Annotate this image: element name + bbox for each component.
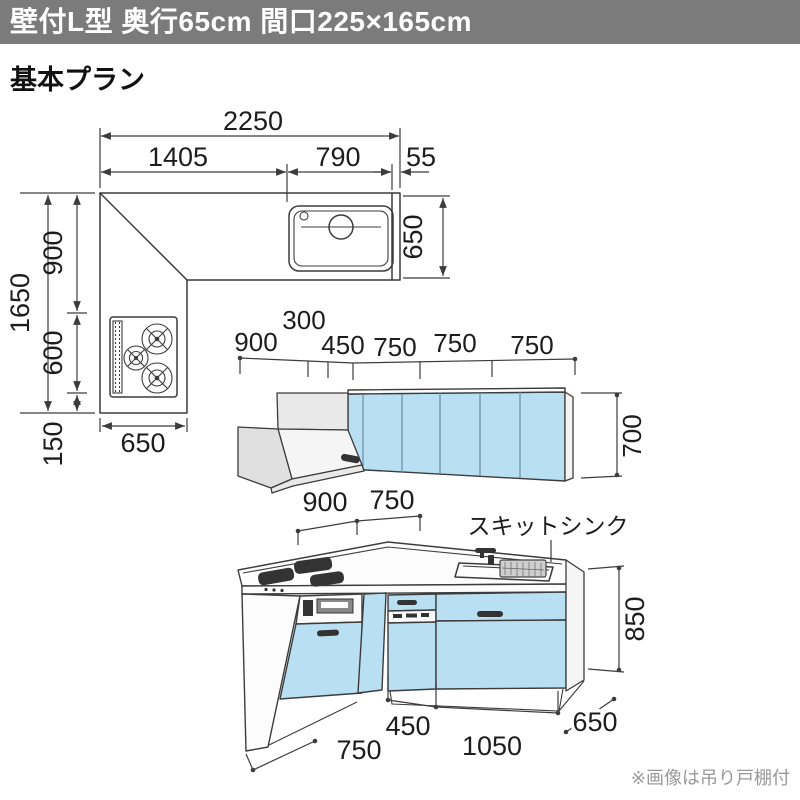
dim-base-depth: 650 [572, 707, 617, 737]
dim-plan-width-sink: 790 [315, 142, 360, 172]
dim-wall-height: 700 [617, 414, 647, 457]
drainer-basket [500, 560, 546, 577]
dim-base-back-left: 900 [302, 487, 347, 517]
dim-wall-door3: 750 [510, 330, 553, 360]
burner-mid-left [124, 346, 148, 370]
corner-diagonal [100, 193, 187, 280]
dim-plan-depth-upper: 900 [38, 230, 68, 275]
sink-cabinet-bottom-drawer [436, 620, 566, 689]
base-cabinet-elevation: 900 750 スキットシンク 850 650 450 1050 750 [238, 485, 650, 772]
dim-plan-leg-width: 650 [120, 428, 165, 458]
cooktop-plan [110, 317, 177, 397]
burner-top-right [142, 324, 172, 354]
dim-base-unit-small: 450 [385, 711, 430, 741]
dim-plan-depth-lower: 150 [38, 421, 68, 466]
dim-plan-depth-mid: 600 [38, 330, 68, 375]
dim-base-leg-depth: 750 [336, 735, 381, 765]
sink-drawer-handle [477, 611, 503, 617]
sink-product-label: スキットシンク [468, 513, 629, 539]
dim-wall-hood: 900 [234, 327, 277, 357]
sink-plan [289, 206, 393, 271]
dim-base-height: 850 [620, 596, 650, 641]
dim-wall-corner: 300 [282, 305, 325, 335]
base-right-end-panel [566, 560, 584, 691]
dim-wall-door2: 750 [433, 328, 476, 358]
wall-cabinet-elevation: 900 300 450 750 750 750 700 [234, 305, 647, 493]
dim-plan-counter-depth: 650 [398, 214, 428, 259]
dim-wall-door1: 750 [373, 332, 416, 362]
dim-base-back-right: 750 [369, 485, 414, 515]
wall-cabinet-doors [348, 392, 565, 481]
hood-upper-front [277, 393, 348, 430]
dim-plan-width-end: 55 [406, 142, 436, 172]
image-footnote: ※画像は吊り戸棚付 [631, 764, 790, 790]
left-drawer-handle [317, 629, 339, 636]
unit450-handle [397, 600, 417, 605]
dim-plan-depth-total: 1650 [5, 273, 35, 333]
dim-base-unit-large: 1050 [462, 731, 522, 761]
dim-plan-width-left: 1405 [148, 142, 208, 172]
range-hood [238, 393, 364, 493]
kitchen-diagram: 2250 1405 790 55 1650 900 600 150 650 65… [0, 0, 800, 800]
dim-wall-corner-door: 450 [321, 330, 364, 360]
dim-plan-width-total: 2250 [223, 106, 283, 136]
burner-bottom-right [142, 363, 172, 393]
unit450-door [388, 622, 436, 691]
wall-cabinet-end-panel [565, 392, 573, 481]
